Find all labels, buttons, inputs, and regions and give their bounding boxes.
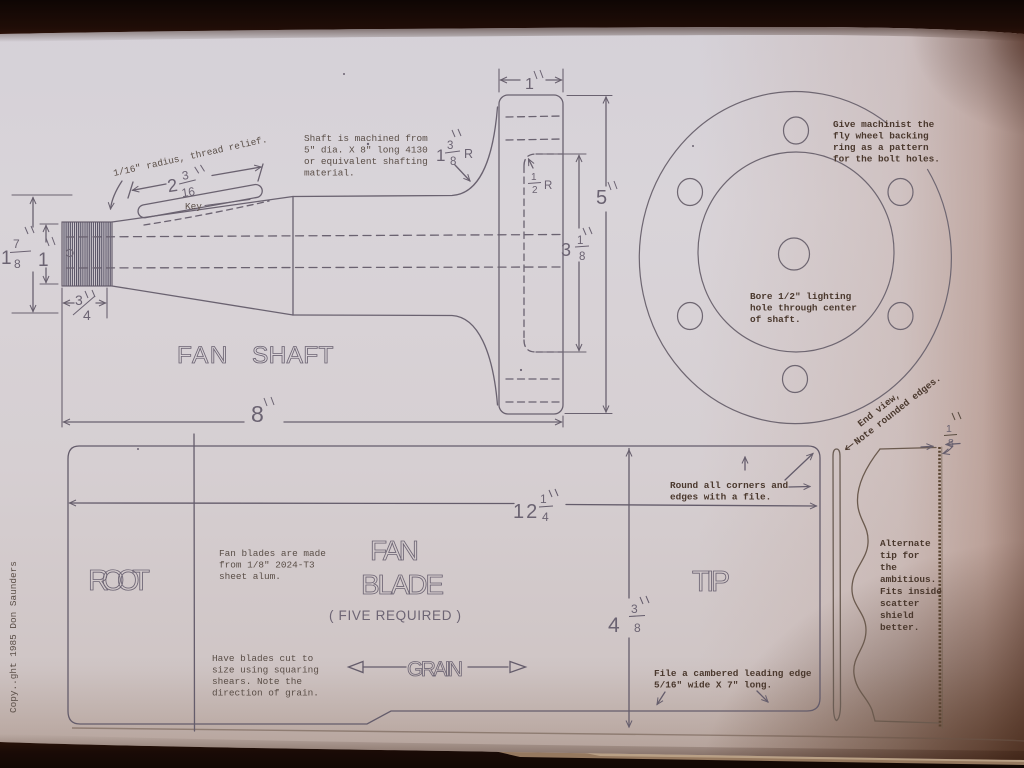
- svg-text:edges with a file.: edges with a file.: [670, 492, 771, 503]
- svg-text:R: R: [544, 180, 552, 192]
- svg-text:shield: shield: [880, 610, 914, 621]
- svg-text:TIP: TIP: [692, 566, 734, 598]
- svg-text:better.: better.: [880, 622, 919, 633]
- svg-text:1: 1: [577, 235, 583, 247]
- svg-text:8: 8: [14, 257, 21, 271]
- svg-text:FAN: FAN: [370, 535, 423, 566]
- svg-text:1: 1: [436, 146, 445, 165]
- svg-text:8: 8: [450, 156, 456, 168]
- svg-text:8: 8: [948, 437, 954, 449]
- svg-text:the: the: [880, 562, 897, 573]
- svg-text:FAN: FAN: [177, 342, 230, 369]
- svg-text:5" dia. X 8" long 4130: 5" dia. X 8" long 4130: [304, 145, 428, 156]
- svg-text:material.: material.: [304, 168, 355, 179]
- svg-text:from 1/8" 2024-T3: from 1/8" 2024-T3: [219, 560, 315, 571]
- svg-text:4: 4: [608, 614, 620, 637]
- svg-text:of shaft.: of shaft.: [750, 314, 801, 325]
- svg-text:( FIVE REQUIRED ): ( FIVE REQUIRED ): [329, 608, 463, 623]
- svg-text:Have blades cut to: Have blades cut to: [212, 653, 314, 664]
- svg-text:1: 1: [946, 423, 952, 435]
- svg-text:5: 5: [596, 187, 607, 209]
- svg-text:3: 3: [561, 240, 571, 260]
- svg-text:8: 8: [251, 401, 264, 427]
- svg-text:scatter: scatter: [880, 598, 919, 609]
- svg-text:Copy..ght 1985 Don Saunders: Copy..ght 1985 Don Saunders: [8, 561, 19, 713]
- svg-text:R: R: [464, 147, 473, 161]
- svg-text:File a cambered leading edge: File a cambered leading edge: [654, 668, 812, 679]
- svg-text:fly wheel backing: fly wheel backing: [833, 131, 929, 142]
- svg-text:sheet alum.: sheet alum.: [219, 571, 281, 582]
- svg-text:ring as a pattern: ring as a pattern: [833, 142, 929, 153]
- svg-text:1: 1: [525, 76, 534, 93]
- svg-text:ROOT: ROOT: [88, 565, 154, 597]
- svg-text:SHAFT: SHAFT: [252, 342, 336, 369]
- svg-text:3: 3: [75, 292, 83, 308]
- svg-text:Alternate: Alternate: [880, 538, 931, 549]
- svg-text:size using squaring: size using squaring: [212, 665, 319, 676]
- svg-text:Bore 1/2" lighting: Bore 1/2" lighting: [750, 291, 852, 302]
- svg-text:hole through center: hole through center: [750, 303, 857, 314]
- svg-text:3: 3: [631, 602, 638, 616]
- svg-text:shears. Note the: shears. Note the: [212, 676, 302, 687]
- svg-text:ambitious.: ambitious.: [880, 574, 936, 585]
- svg-text:direction of grain.: direction of grain.: [212, 688, 319, 699]
- svg-text:7: 7: [13, 237, 20, 251]
- svg-text:GRAIN: GRAIN: [407, 658, 465, 681]
- svg-text:Key: Key: [185, 201, 202, 212]
- svg-text:BLADE: BLADE: [361, 569, 447, 600]
- svg-text:3: 3: [447, 140, 453, 152]
- svg-text:16: 16: [181, 184, 197, 200]
- svg-text:5/16" wide X 7" long.: 5/16" wide X 7" long.: [654, 680, 772, 691]
- svg-text:8: 8: [579, 251, 585, 263]
- svg-text:8: 8: [634, 621, 641, 635]
- svg-text:for the bolt holes.: for the bolt holes.: [833, 154, 940, 165]
- svg-text:Shaft is machined from: Shaft is machined from: [304, 133, 428, 144]
- svg-text:4: 4: [83, 307, 91, 323]
- svg-text:1: 1: [531, 172, 537, 183]
- svg-text:1: 1: [38, 250, 49, 271]
- svg-text:1: 1: [540, 492, 547, 506]
- svg-text:4: 4: [542, 510, 549, 524]
- svg-text:tip for: tip for: [880, 550, 919, 561]
- svg-text:Round all corners and: Round all corners and: [670, 480, 788, 491]
- svg-text:1: 1: [1, 248, 12, 269]
- svg-text:or equivalent shafting: or equivalent shafting: [304, 156, 428, 167]
- svg-text:12: 12: [513, 501, 539, 523]
- svg-text:Fits inside: Fits inside: [880, 586, 942, 597]
- svg-text:Fan blades are made: Fan blades are made: [219, 548, 326, 559]
- svg-text:Give machinist the: Give machinist the: [833, 119, 935, 130]
- svg-text:2: 2: [532, 185, 538, 196]
